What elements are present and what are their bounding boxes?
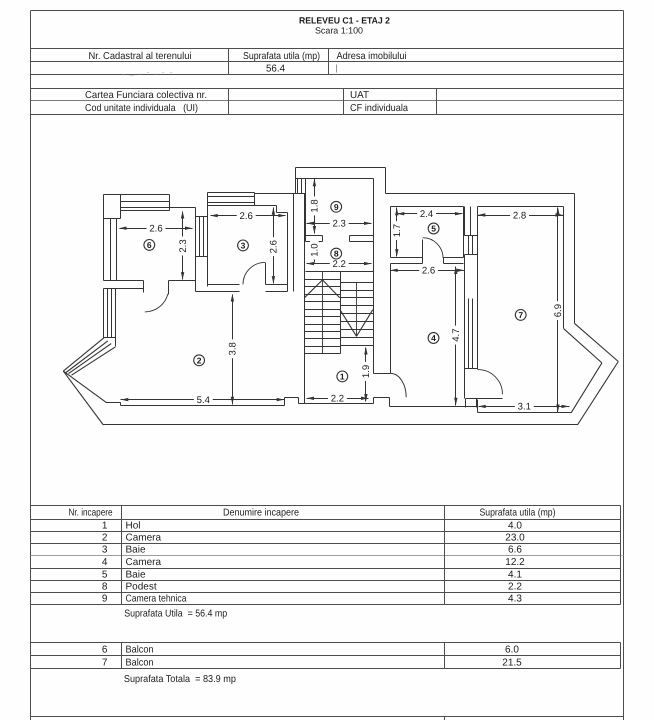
svg-text:7: 7 — [518, 310, 523, 320]
svg-text:12.2: 12.2 — [505, 557, 525, 568]
svg-text:Suprafata utila (mp): Suprafata utila (mp) — [243, 51, 320, 62]
svg-text:9: 9 — [102, 594, 108, 605]
svg-text:Suprafata utila (mp): Suprafata utila (mp) — [480, 508, 556, 519]
svg-text:56.4: 56.4 — [266, 64, 285, 75]
svg-text:2.6: 2.6 — [149, 224, 162, 235]
svg-text:3.8: 3.8 — [228, 342, 239, 355]
svg-text:8: 8 — [334, 249, 339, 259]
svg-text:2.2: 2.2 — [508, 581, 522, 592]
svg-text:Camera: Camera — [126, 533, 162, 544]
svg-text:Baie: Baie — [126, 545, 146, 556]
svg-text:, _ . - . - -: , _ . - . - - — [122, 68, 174, 77]
svg-text:6.9: 6.9 — [553, 304, 564, 317]
svg-text:1.9: 1.9 — [361, 365, 372, 378]
svg-text:5: 5 — [431, 224, 436, 234]
svg-text:1.8: 1.8 — [310, 199, 321, 212]
svg-text:4: 4 — [431, 333, 436, 343]
svg-text:2.3: 2.3 — [178, 239, 189, 252]
svg-text:Adresa imobilului: Adresa imobilului — [337, 51, 407, 62]
svg-text:5.4: 5.4 — [197, 395, 211, 406]
svg-text:2.3: 2.3 — [333, 219, 346, 230]
svg-text:Scara 1:100: Scara 1:100 — [315, 25, 363, 35]
svg-text:23.0: 23.0 — [505, 533, 525, 544]
svg-text:5: 5 — [102, 569, 108, 580]
svg-text:2.6: 2.6 — [269, 240, 280, 253]
svg-text:Nr. incapere: Nr. incapere — [69, 508, 113, 519]
svg-text:Cartea Funciara colectiva nr.: Cartea Funciara colectiva nr. — [85, 90, 207, 101]
svg-text:2.2: 2.2 — [333, 259, 346, 270]
svg-text:2: 2 — [197, 355, 202, 365]
svg-text:2.6: 2.6 — [240, 211, 253, 222]
svg-text:6.0: 6.0 — [505, 645, 519, 656]
svg-text:Suprafata Utila = 56.4 mp: Suprafata Utila = 56.4 mp — [124, 608, 227, 619]
svg-text:Camera tehnica: Camera tehnica — [126, 594, 187, 605]
svg-text:8: 8 — [102, 581, 108, 592]
svg-text:7: 7 — [102, 657, 108, 668]
svg-text:4.0: 4.0 — [508, 521, 522, 532]
svg-text:Nr. Cadastral al terenului: Nr. Cadastral al terenului — [89, 51, 192, 62]
svg-text:Balcon: Balcon — [126, 657, 154, 668]
svg-text:9: 9 — [334, 202, 339, 212]
svg-text:Baie: Baie — [126, 569, 146, 580]
svg-text:2.2: 2.2 — [331, 394, 344, 405]
svg-text:2.8: 2.8 — [513, 210, 526, 221]
svg-text:4.3: 4.3 — [508, 594, 522, 605]
svg-text:2: 2 — [102, 533, 108, 544]
svg-text:3: 3 — [102, 545, 108, 556]
svg-text:6.6: 6.6 — [508, 545, 522, 556]
svg-text:Balcon: Balcon — [126, 645, 154, 656]
svg-text:Hol: Hol — [126, 521, 141, 532]
svg-text:RELEVEU C1 - ETAJ 2: RELEVEU C1 - ETAJ 2 — [299, 16, 390, 26]
svg-text:Podest: Podest — [126, 581, 157, 592]
svg-text:Suprafata Totala = 83.9 mp: Suprafata Totala = 83.9 mp — [124, 674, 236, 685]
svg-text:1: 1 — [340, 371, 345, 381]
svg-text:UAT: UAT — [350, 90, 369, 101]
svg-text:1.7: 1.7 — [392, 224, 403, 237]
svg-text:6: 6 — [102, 645, 108, 656]
svg-text:3: 3 — [241, 240, 246, 250]
svg-text:Camera: Camera — [126, 557, 162, 568]
svg-text:Cod unitate individuala (UI): Cod unitate individuala (UI) — [85, 103, 198, 114]
svg-text:4: 4 — [102, 557, 108, 568]
svg-text:2.6: 2.6 — [422, 266, 435, 277]
svg-text:CF individuala: CF individuala — [350, 103, 408, 114]
svg-text:21.5: 21.5 — [502, 657, 522, 668]
svg-text:4.7: 4.7 — [451, 328, 462, 341]
svg-text:6: 6 — [147, 240, 152, 250]
svg-text:1: 1 — [102, 521, 108, 532]
svg-text:4.1: 4.1 — [508, 569, 522, 580]
svg-text:1.0: 1.0 — [310, 243, 321, 256]
svg-text:2.4: 2.4 — [420, 209, 434, 220]
svg-text:3.1: 3.1 — [518, 402, 531, 413]
svg-text:Denumire incapere: Denumire incapere — [223, 508, 299, 519]
